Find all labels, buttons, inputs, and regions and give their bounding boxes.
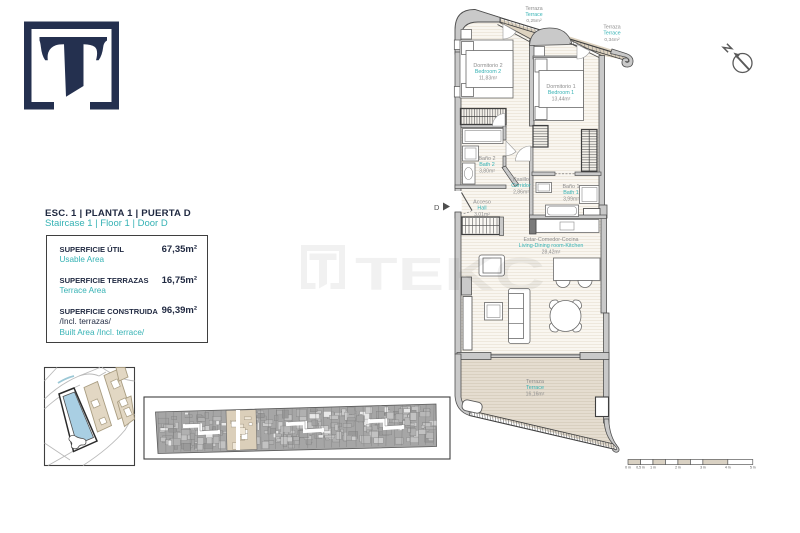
svg-text:Bedroom 1: Bedroom 1 — [548, 90, 574, 96]
svg-text:5 m: 5 m — [750, 466, 756, 470]
svg-text:1 m: 1 m — [650, 466, 656, 470]
svg-text:Baño 2: Baño 2 — [478, 156, 495, 162]
svg-text:Bath 1: Bath 1 — [563, 190, 579, 196]
svg-text:3,01m²: 3,01m² — [474, 212, 490, 218]
svg-text:Terraza: Terraza — [526, 379, 544, 385]
svg-text:3,99m²: 3,99m² — [563, 196, 579, 202]
svg-text:3 m: 3 m — [700, 466, 706, 470]
svg-text:Terrace: Terrace — [525, 12, 542, 18]
svg-text:Acceso: Acceso — [473, 200, 491, 206]
svg-text:Baño 1: Baño 1 — [562, 184, 579, 190]
svg-text:TEKC: TEKC — [355, 248, 545, 300]
svg-text:Terraza: Terraza — [525, 6, 542, 12]
svg-text:13,44m²: 13,44m² — [552, 96, 571, 102]
svg-text:Bedroom 2: Bedroom 2 — [475, 69, 501, 75]
svg-text:Pasillo: Pasillo — [513, 177, 529, 183]
svg-text:Hall: Hall — [477, 206, 486, 212]
svg-text:Terraza: Terraza — [603, 25, 620, 31]
svg-text:2 m: 2 m — [675, 466, 681, 470]
svg-text:11,83m²: 11,83m² — [479, 75, 498, 81]
svg-text:0,25m²: 0,25m² — [526, 18, 542, 24]
svg-text:16,16m²: 16,16m² — [526, 391, 545, 397]
svg-text:Bath 2: Bath 2 — [479, 162, 495, 168]
svg-text:Estar-Comedor-Cocina: Estar-Comedor-Cocina — [523, 237, 578, 243]
svg-text:Corridor: Corridor — [511, 183, 531, 189]
svg-text:3,80m²: 3,80m² — [479, 168, 495, 174]
svg-text:Dormitorio 2: Dormitorio 2 — [473, 63, 502, 69]
svg-text:Terrace: Terrace — [603, 31, 620, 37]
svg-text:Dormitorio 1: Dormitorio 1 — [546, 84, 575, 90]
svg-text:Terrace: Terrace — [526, 385, 544, 391]
svg-text:0,34m²: 0,34m² — [604, 37, 620, 43]
svg-text:0,5 m: 0,5 m — [636, 466, 645, 470]
svg-text:D: D — [434, 203, 440, 212]
svg-text:4 m: 4 m — [725, 466, 731, 470]
svg-text:0 m: 0 m — [625, 466, 631, 470]
svg-text:2,86m²: 2,86m² — [513, 189, 529, 195]
